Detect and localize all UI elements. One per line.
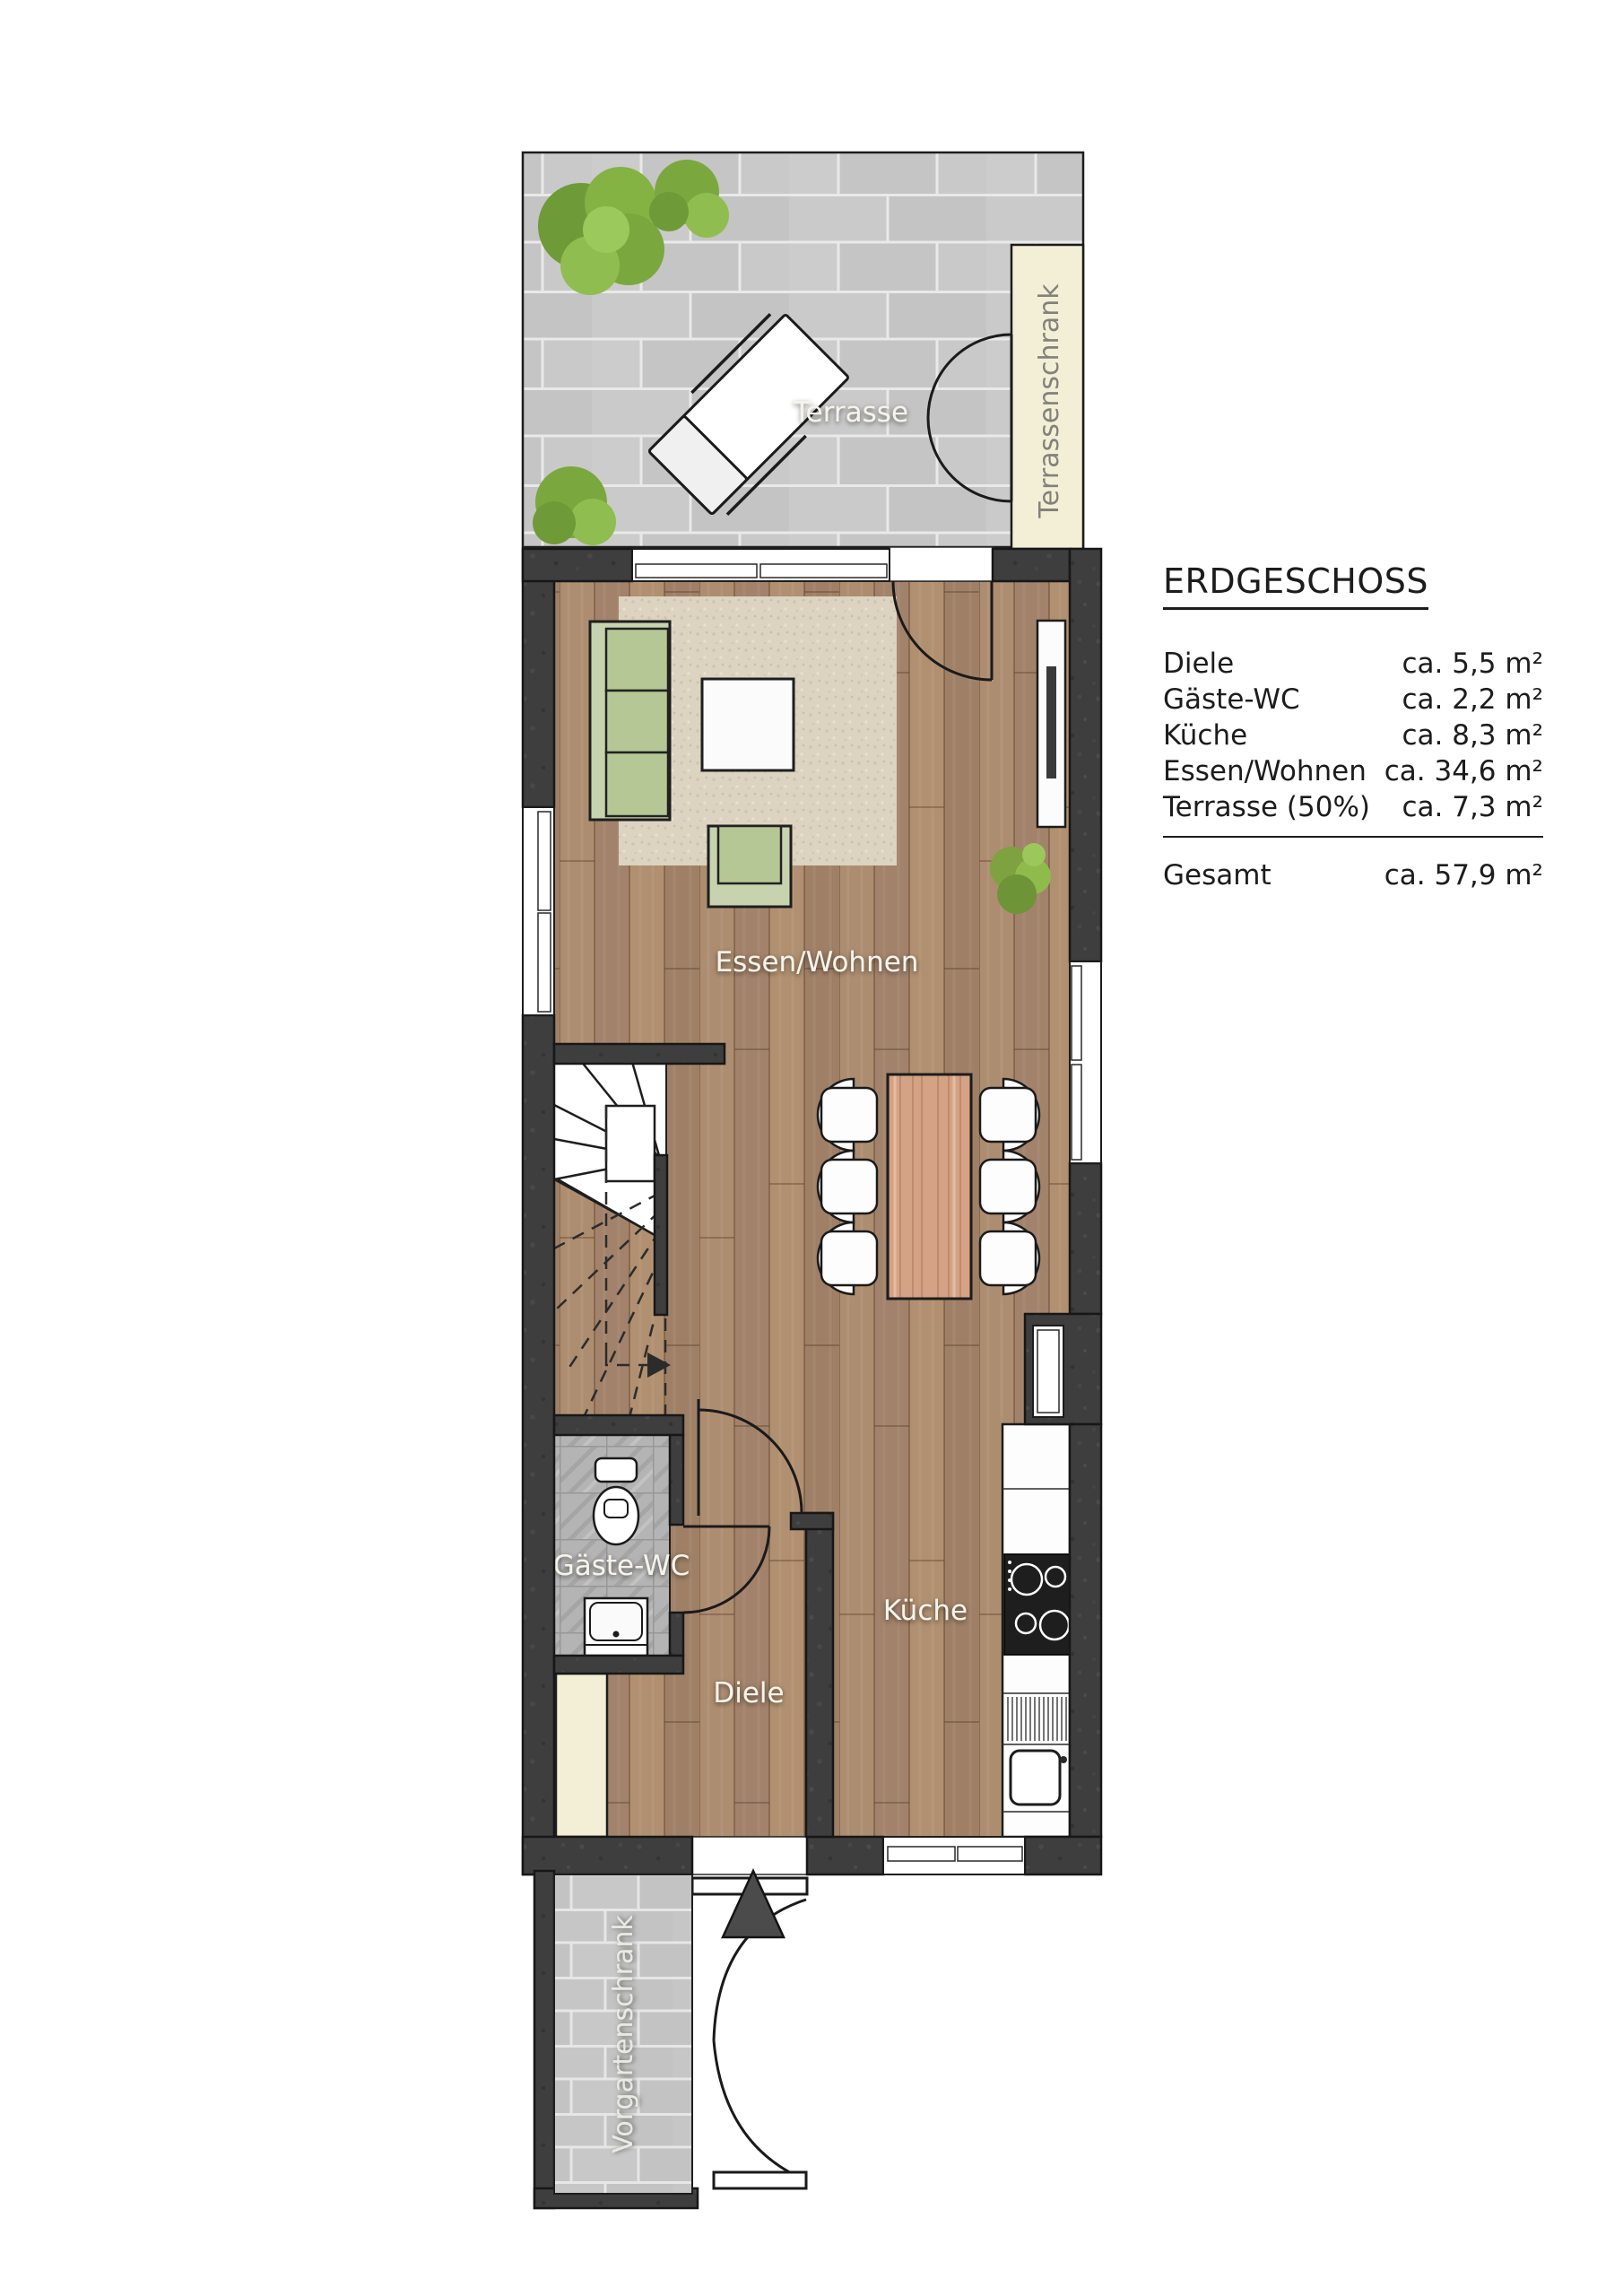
legend-room-area: ca. 34,6 m²	[1384, 753, 1543, 789]
wall-segment	[554, 1656, 683, 1674]
stair-landing	[606, 1106, 655, 1181]
legend-total-row: Gesamt ca. 57,9 m²	[1163, 857, 1543, 893]
terrace-label: Terrasse	[793, 396, 908, 429]
wall-segment	[1070, 1163, 1101, 1314]
window-bottom	[883, 1837, 1025, 1874]
wall-segment	[554, 1044, 725, 1064]
dining-chair	[818, 1151, 877, 1222]
legend-room-name: Essen/Wohnen	[1163, 753, 1367, 789]
dining-set	[818, 1074, 1039, 1299]
wall-segment	[670, 1613, 683, 1656]
wall-segment	[523, 549, 554, 807]
armchair	[708, 826, 791, 907]
wall-segment	[523, 1015, 554, 1874]
legend: ERDGESCHOSS Diele ca. 5,5 m² Gäste-WC ca…	[1163, 561, 1543, 893]
dining-chair	[980, 1222, 1039, 1294]
legend-room-area: ca. 5,5 m²	[1402, 646, 1543, 682]
tv	[1046, 666, 1056, 778]
entrance-threshold	[692, 1837, 807, 1874]
kitchen-label: Küche	[883, 1595, 968, 1627]
wall-segment	[806, 1513, 833, 1837]
toilet	[594, 1458, 638, 1544]
tv-board	[1037, 621, 1065, 827]
wall-segment	[523, 549, 632, 581]
wall-segment	[523, 1837, 692, 1874]
washbasin	[585, 1598, 647, 1656]
cooktop	[1004, 1554, 1070, 1655]
wall-segment	[791, 1513, 833, 1529]
dining-chair	[980, 1151, 1039, 1222]
legend-total-label: Gesamt	[1163, 857, 1271, 893]
wall-segment	[1070, 549, 1101, 961]
living-room-label: Essen/Wohnen	[716, 946, 919, 978]
wall-segment	[1025, 1837, 1101, 1874]
wall-segment	[1070, 1424, 1101, 1837]
kitchen-sink	[1011, 1751, 1067, 1805]
legend-row: Terrasse (50%) ca. 7,3 m²	[1163, 789, 1543, 825]
legend-room-area: ca. 7,3 m²	[1402, 789, 1543, 825]
legend-separator	[1163, 836, 1543, 838]
legend-room-name: Küche	[1163, 717, 1247, 753]
legend-row: Essen/Wohnen ca. 34,6 m²	[1163, 753, 1543, 789]
legend-room-name: Gäste-WC	[1163, 682, 1300, 717]
legend-room-area: ca. 8,3 m²	[1402, 717, 1543, 753]
wardrobe	[556, 1674, 607, 1837]
window-top	[632, 549, 890, 581]
coffee-table	[702, 679, 794, 770]
wall-segment	[554, 1415, 683, 1435]
vorgarten-area: Vorgartenschrank	[554, 1874, 692, 2194]
vorgartenschrank-label: Vorgartenschrank	[608, 1915, 639, 2153]
sofa	[590, 622, 670, 820]
window-right	[1070, 961, 1101, 1163]
legend-row: Küche ca. 8,3 m²	[1163, 717, 1543, 753]
wall-segment	[534, 1871, 554, 2208]
window-kitchen-side	[1033, 1326, 1063, 1417]
terrassenschrank-label: Terrassenschrank	[1034, 283, 1065, 519]
hallway-label: Diele	[713, 1677, 784, 1709]
wall-segment	[993, 549, 1070, 581]
dining-chair	[818, 1222, 877, 1294]
stair-railing	[655, 1155, 667, 1315]
legend-room-area: ca. 2,2 m²	[1402, 682, 1543, 717]
legend-row: Diele ca. 5,5 m²	[1163, 646, 1543, 682]
legend-room-name: Diele	[1163, 646, 1234, 682]
wc-label: Gäste-WC	[553, 1550, 690, 1582]
legend-total-value: ca. 57,9 m²	[1384, 857, 1543, 893]
window-left	[523, 807, 554, 1015]
dining-table	[888, 1074, 971, 1299]
dining-chair	[818, 1079, 877, 1151]
wall-segment	[670, 1435, 683, 1525]
terrace-door-threshold	[890, 547, 993, 581]
dining-chair	[980, 1079, 1039, 1151]
legend-title: ERDGESCHOSS	[1163, 561, 1428, 610]
legend-room-name: Terrasse (50%)	[1163, 789, 1370, 825]
wall-segment	[807, 1837, 883, 1874]
terrace-area: Terrassenschrank Terrasse	[523, 152, 1083, 549]
floor-plan-page: Terrassenschrank Terrasse	[0, 0, 1623, 2296]
floor-plan-drawing: Terrassenschrank Terrasse	[0, 0, 1623, 2296]
legend-row: Gäste-WC ca. 2,2 m²	[1163, 682, 1543, 717]
